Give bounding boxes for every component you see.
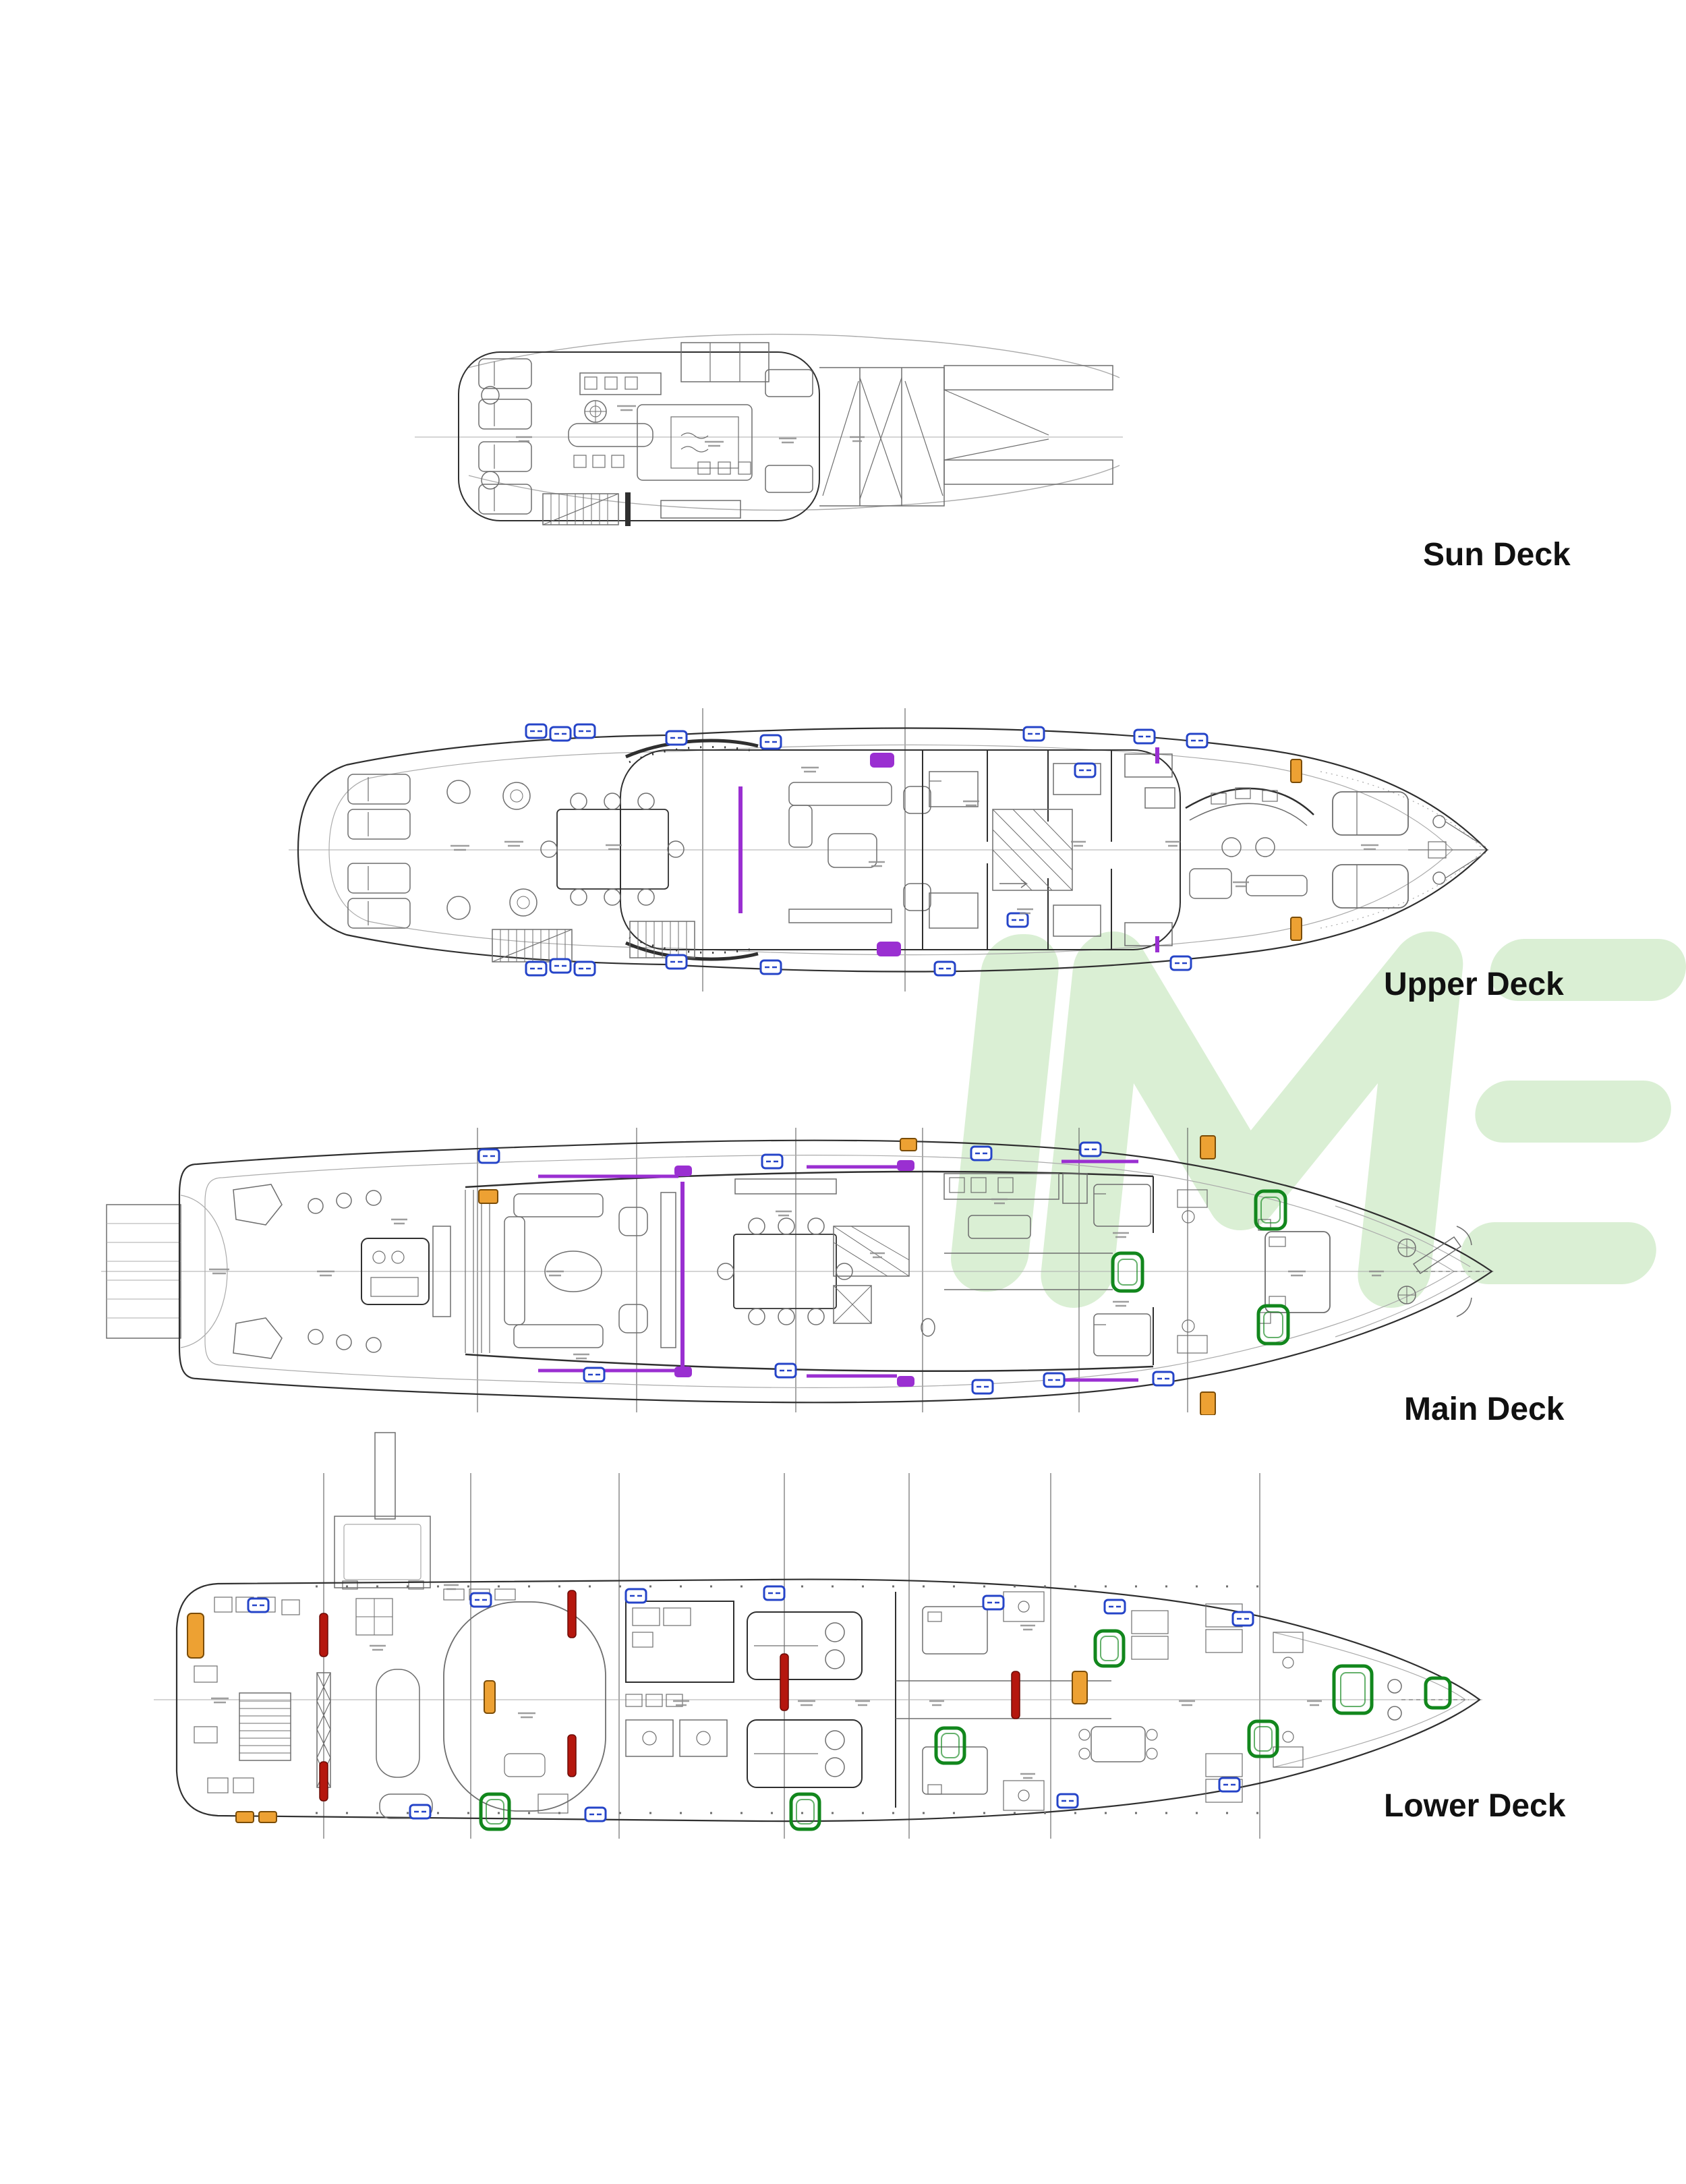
crew-mess: [1079, 1727, 1157, 1762]
main-deck-label: Main Deck: [1404, 1391, 1564, 1428]
lower-deck-plan: [154, 1430, 1482, 1841]
aft-tech-space: [194, 1597, 299, 1793]
upper-aft-deck: [348, 774, 695, 962]
jacuzzi: [637, 405, 752, 480]
main-salon: [504, 1192, 676, 1348]
crew-quarters: [1079, 1604, 1469, 1802]
upper-deck-label: Upper Deck: [1384, 966, 1564, 1003]
sky-bar: [569, 373, 661, 467]
wheelhouse: [1186, 788, 1314, 898]
dining-area: [718, 1179, 852, 1325]
main-deck-markers: [479, 1136, 1288, 1415]
main-deck-micro-labels: [209, 1199, 1384, 1358]
main-deck-plan: [101, 1125, 1494, 1415]
galley: [944, 1174, 1113, 1290]
beach-club-stairs: [239, 1693, 291, 1760]
engine-room: [626, 1601, 862, 1787]
upper-deck-plan: [289, 707, 1489, 993]
yacht-deck-plans-page: IME: [0, 0, 1686, 2184]
lower-deck-label: Lower Deck: [1384, 1787, 1565, 1824]
mast-wings: [944, 366, 1113, 484]
foyer-stairs: [834, 1226, 935, 1336]
crane-mast: [335, 1433, 430, 1589]
main-deck-hull: [101, 1128, 1494, 1412]
sun-deck-plan: [415, 304, 1123, 540]
guest-cabins: [1094, 1176, 1207, 1365]
lower-deck-markers: [187, 1586, 1450, 1829]
lower-deck-hull: [154, 1433, 1482, 1839]
sun-deck-furniture: [479, 343, 813, 526]
sun-deck-micro-labels: [516, 406, 865, 446]
upper-salon: [789, 782, 931, 923]
sun-deck-label: Sun Deck: [1423, 536, 1571, 573]
